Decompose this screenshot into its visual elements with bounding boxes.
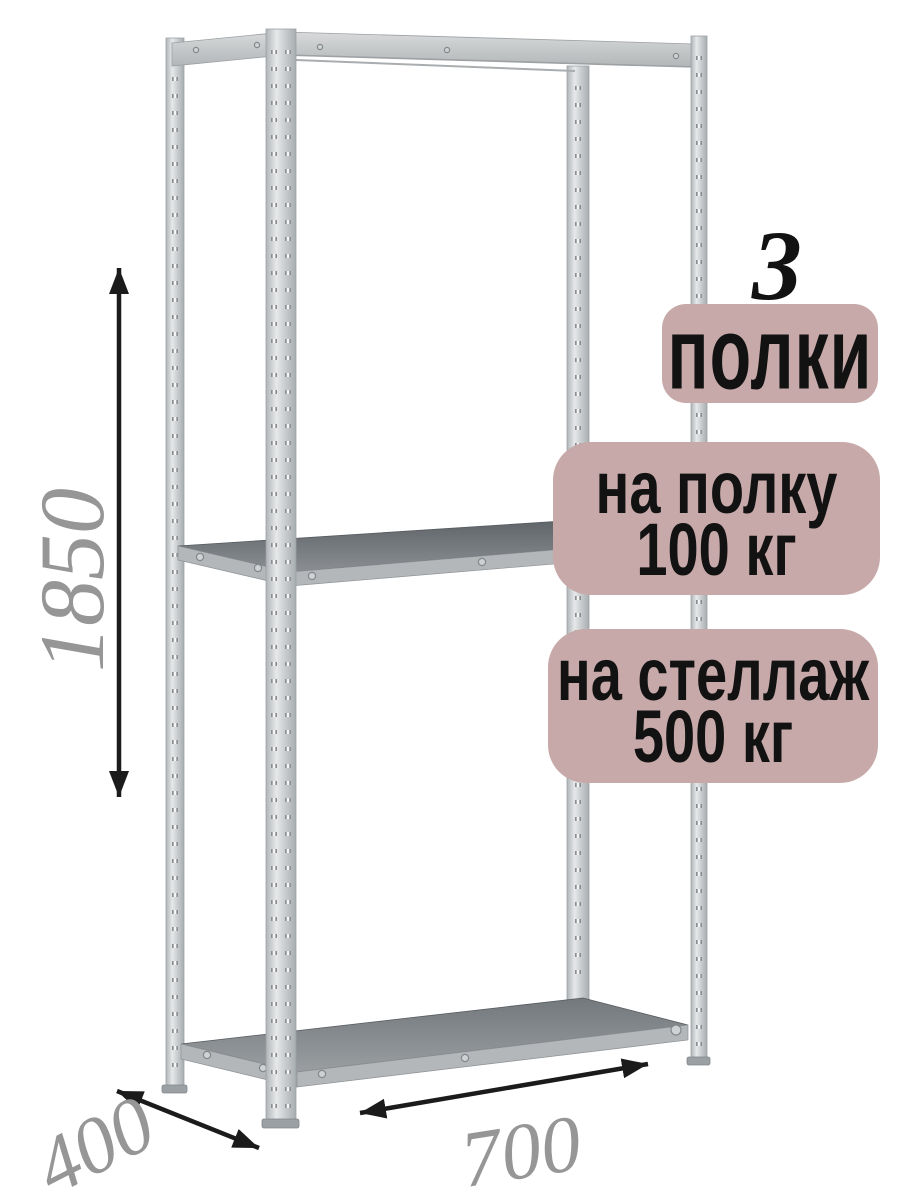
product-image: 1850 400 700 3 полки на полку 100 кг на … — [0, 0, 900, 1200]
per-rack-load-badge: на стеллаж 500 кг — [548, 629, 878, 783]
shelf-count-label: полки — [668, 307, 873, 400]
rack-post-back-left — [162, 38, 187, 1093]
rack-post-front-left — [262, 29, 299, 1128]
width-dimension-label: 700 — [455, 1103, 586, 1200]
rack-top-shelf — [172, 32, 695, 71]
per-shelf-load-value: 100 кг — [636, 509, 796, 591]
rack-bottom-shelf — [181, 998, 688, 1087]
per-shelf-load-badge: на полку 100 кг — [553, 442, 880, 595]
per-rack-load-value: 500 кг — [633, 696, 793, 778]
shelving-rack-illustration — [0, 0, 900, 1200]
shelf-count-badge: полки — [662, 304, 878, 403]
height-dimension-label: 1850 — [26, 488, 118, 672]
